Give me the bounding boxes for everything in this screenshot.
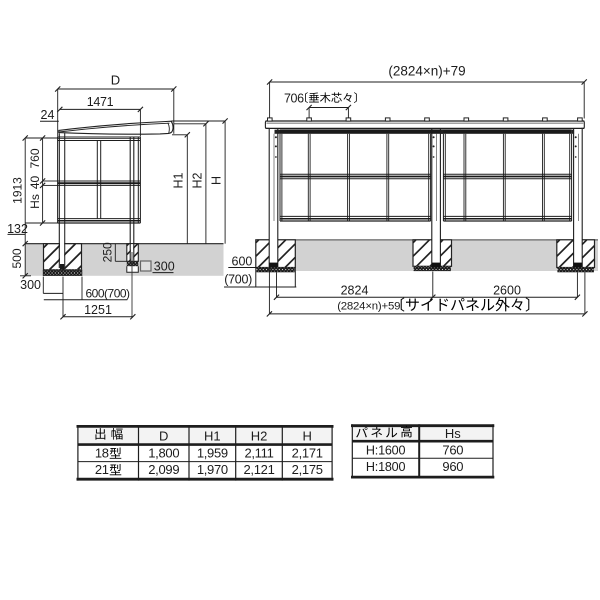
svg-text:H2: H2 — [251, 429, 268, 444]
svg-text:H2: H2 — [191, 172, 205, 188]
svg-text:500: 500 — [10, 248, 24, 268]
svg-text:2,111: 2,111 — [244, 446, 273, 461]
svg-text:1,959: 1,959 — [197, 446, 228, 461]
svg-text:2,175: 2,175 — [292, 462, 323, 477]
svg-text:1913: 1913 — [11, 177, 25, 204]
svg-text:18: 18 — [95, 446, 109, 461]
svg-text:21: 21 — [95, 462, 109, 477]
svg-text:760: 760 — [442, 442, 463, 457]
svg-text:600: 600 — [232, 254, 253, 268]
svg-text:(700): (700) — [224, 273, 252, 287]
svg-text:300: 300 — [20, 278, 41, 292]
svg-text:H: H — [209, 176, 223, 185]
svg-text:(2824×n)+59: (2824×n)+59 — [337, 301, 400, 313]
svg-text:Hs: Hs — [445, 426, 461, 441]
svg-text:960: 960 — [442, 459, 463, 474]
svg-text:(2824×n)+79: (2824×n)+79 — [388, 64, 465, 79]
svg-text:D: D — [159, 429, 168, 444]
svg-text:1251: 1251 — [84, 303, 112, 317]
svg-text:H1: H1 — [204, 429, 221, 444]
svg-text:760: 760 — [28, 148, 42, 168]
svg-text:2,171: 2,171 — [292, 446, 323, 461]
svg-text:H: H — [303, 429, 312, 444]
svg-text:706: 706 — [284, 92, 304, 106]
svg-text:2,099: 2,099 — [148, 462, 179, 477]
svg-text:250: 250 — [100, 242, 114, 262]
svg-text:2600: 2600 — [493, 284, 521, 298]
svg-text:D: D — [111, 73, 120, 88]
svg-text:H1: H1 — [172, 172, 186, 188]
svg-text:24: 24 — [41, 108, 55, 122]
svg-text:Hs: Hs — [28, 194, 42, 209]
svg-text:600(700): 600(700) — [86, 286, 131, 300]
svg-text:H:1600: H:1600 — [366, 443, 406, 457]
svg-text:40: 40 — [28, 176, 42, 190]
svg-text:2,121: 2,121 — [243, 462, 274, 477]
svg-text:1,970: 1,970 — [197, 462, 228, 477]
svg-text:H:1800: H:1800 — [366, 460, 406, 474]
svg-text:1,800: 1,800 — [148, 446, 179, 461]
svg-text:2824: 2824 — [341, 284, 369, 298]
svg-text:1471: 1471 — [87, 95, 114, 109]
svg-text:300: 300 — [154, 260, 175, 274]
